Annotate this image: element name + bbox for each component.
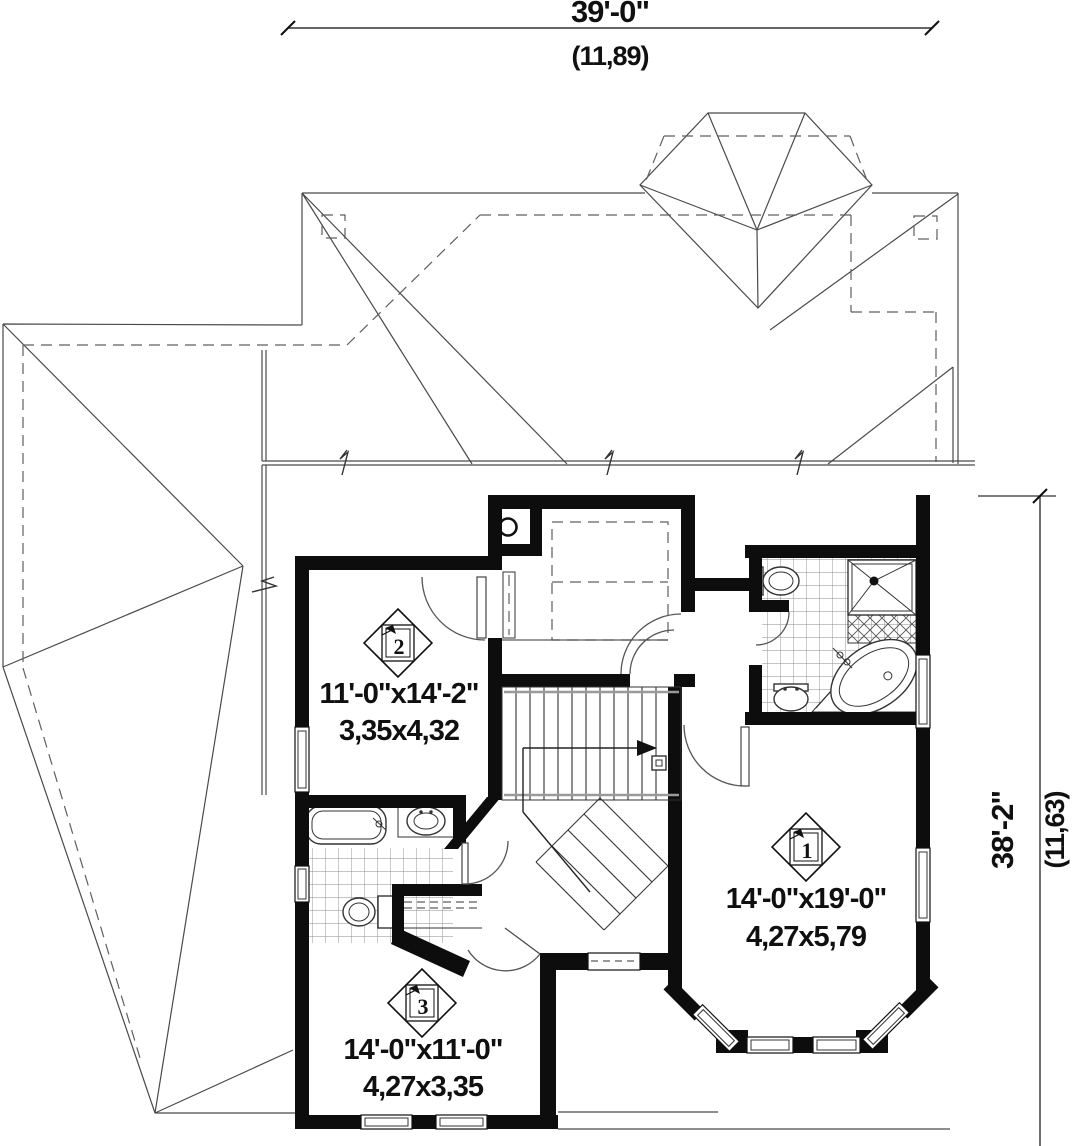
window-left-upper [295, 727, 309, 792]
bedroom1-door [684, 725, 749, 786]
bedroom3-size-metric: 4,27x3,35 [363, 1071, 484, 1103]
bedroom2-size-metric: 3,35x4,32 [339, 715, 459, 747]
bedroom3-marker: 3 [388, 969, 456, 1037]
winder-steps [536, 798, 668, 930]
bedroom3-size-imperial: 14'-0"x11'-0" [344, 1034, 503, 1066]
floor-plan-canvas: 2 11'-0"x14'-2" 3,35x4,32 1 14'-0"x19'-0… [0, 0, 1080, 1146]
bathtub-icon [306, 806, 386, 844]
bedroom2-marker: 2 [364, 609, 432, 677]
hall-corridor-door [621, 614, 681, 674]
sink-icon [774, 684, 808, 711]
dimension-right: 38'-2" (11,63) [978, 489, 1070, 1146]
window-right-lower [916, 848, 930, 922]
break-symbols [252, 450, 803, 592]
dimension-right-metric: (11,63) [1040, 791, 1070, 868]
shower-icon [848, 560, 916, 615]
dimension-right-imperial: 38'-2" [985, 791, 1020, 869]
window-right-upper [916, 655, 930, 728]
bedroom1-size-metric: 4,27x5,79 [746, 921, 867, 953]
room-number: 2 [394, 634, 405, 659]
storage-room-door [630, 630, 674, 674]
dimension-top-imperial: 39'-0" [571, 0, 649, 29]
floor-plan-page: 2 11'-0"x14'-2" 3,35x4,32 1 14'-0"x19'-0… [0, 0, 1080, 1146]
window-left-lower [295, 866, 309, 902]
chimney-left [322, 215, 345, 238]
bedroom1-marker: 1 [772, 813, 840, 881]
plumbing-stack-icon [500, 519, 517, 536]
bay-window-center-left [747, 1037, 793, 1053]
room-number: 3 [418, 994, 429, 1019]
hall-niche [588, 953, 640, 970]
storage-room [500, 519, 669, 641]
bedroom2-door [422, 577, 486, 640]
bedroom3-door [468, 928, 540, 971]
tile-ledge [848, 615, 916, 643]
dimension-top-metric: (11,89) [571, 41, 648, 71]
room-number: 1 [802, 838, 813, 863]
bedroom1-size-imperial: 14'-0"x19'-0" [726, 883, 887, 915]
window-bottom-left [361, 1115, 412, 1129]
newel-post [652, 756, 666, 770]
bathroom-door [462, 841, 508, 884]
window-bottom-right [436, 1115, 487, 1129]
toilet-icon [343, 896, 394, 928]
bay-window-center-right [813, 1037, 860, 1053]
bedroom2-size-imperial: 11'-0"x14'-2" [320, 678, 479, 710]
staircase [502, 687, 681, 930]
dimension-top: 39'-0" (11,89) [281, 0, 939, 71]
turret-roof [640, 113, 872, 308]
chimney-right [914, 216, 937, 239]
